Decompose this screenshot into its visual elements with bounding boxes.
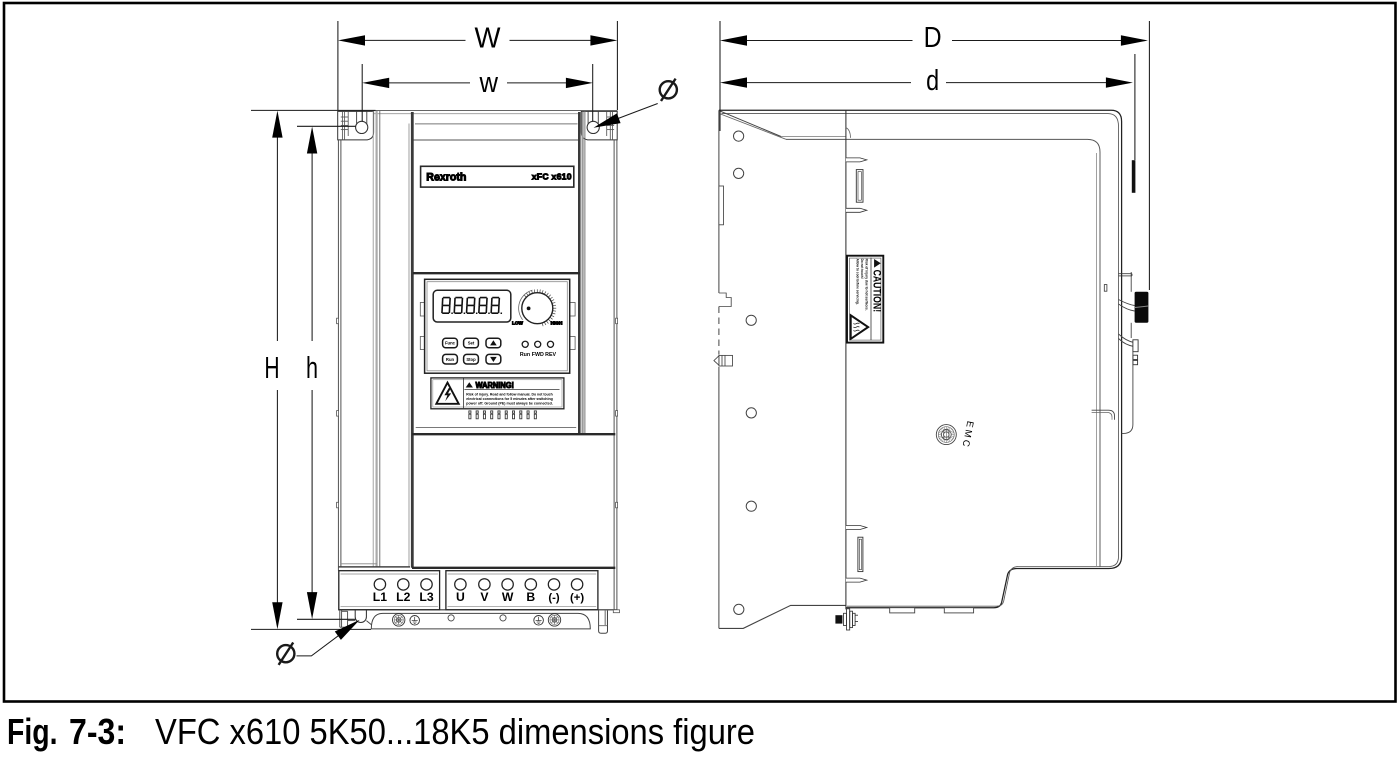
svg-text:Allow to cool before servicing: Allow to cool before servicing. xyxy=(856,259,860,305)
svg-text:Rexroth: Rexroth xyxy=(426,171,466,183)
svg-text:d: d xyxy=(926,65,939,97)
svg-text:Fig.: Fig. xyxy=(7,711,58,752)
svg-text:U: U xyxy=(456,590,465,604)
svg-text:L1: L1 xyxy=(373,590,387,604)
svg-text:FWD: FWD xyxy=(532,352,544,358)
svg-text:LOW: LOW xyxy=(512,321,524,326)
svg-text:H: H xyxy=(264,350,279,385)
svg-text:Risk of injury. Read and follo: Risk of injury. Read and follow manual. … xyxy=(466,392,553,396)
svg-text:B: B xyxy=(526,590,535,604)
svg-text:L2: L2 xyxy=(396,590,410,604)
svg-text:CAUTION!: CAUTION! xyxy=(871,270,883,313)
svg-text:Risk of injury due to hot surf: Risk of injury due to hot surfaces. xyxy=(865,259,869,311)
svg-text:(-): (-) xyxy=(548,592,560,604)
svg-text:Do not touch!: Do not touch! xyxy=(860,259,864,279)
svg-text:electrical connections for 5 m: electrical connections for 5 minutes aft… xyxy=(466,397,553,401)
svg-text:Set: Set xyxy=(468,341,475,346)
svg-text:Stop: Stop xyxy=(466,357,476,362)
svg-text:VFC x610 5K50...18K5 dimension: VFC x610 5K50...18K5 dimensions figure xyxy=(155,711,755,752)
svg-text:power off. Ground (PE) must al: power off. Ground (PE) must always be co… xyxy=(466,401,553,405)
svg-text:w: w xyxy=(479,67,499,99)
svg-text:L3: L3 xyxy=(419,590,433,604)
svg-text:HIGH: HIGH xyxy=(551,321,563,326)
svg-text:EMC: EMC xyxy=(959,420,975,450)
svg-text:Func: Func xyxy=(445,341,456,346)
svg-text:V: V xyxy=(480,590,489,604)
svg-text:Run: Run xyxy=(520,352,530,358)
svg-text:Run: Run xyxy=(446,357,455,362)
svg-text:7-3:: 7-3: xyxy=(69,711,126,752)
svg-text:WARNING!: WARNING! xyxy=(476,381,515,390)
svg-text:D: D xyxy=(924,22,942,54)
svg-text:(+): (+) xyxy=(570,592,584,604)
svg-text:W: W xyxy=(502,590,514,604)
svg-text:REV: REV xyxy=(545,352,556,358)
svg-text:xFC x610: xFC x610 xyxy=(532,172,572,182)
svg-text:h: h xyxy=(306,350,318,385)
svg-text:W: W xyxy=(475,22,501,54)
